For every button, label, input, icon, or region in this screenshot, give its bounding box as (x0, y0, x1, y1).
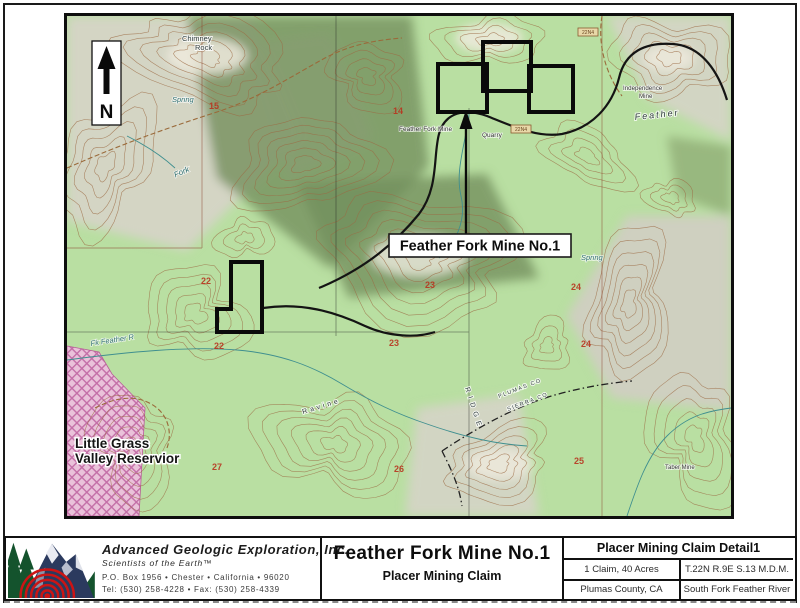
county-cell: Plumas County, CA (564, 581, 681, 600)
company-phone-line: Tel: (530) 258-4228 • Fax: (530) 258-433… (102, 584, 316, 596)
road-badge-label: 22N4 (515, 127, 527, 133)
section-number: 14 (393, 106, 403, 116)
township-cell: T.22N R.9E S.13 M.D.M. (681, 560, 793, 579)
claim-detail-table: Placer Mining Claim Detail1 1 Claim, 40 … (562, 538, 793, 599)
spring-label: Spring (581, 253, 604, 262)
callout-text: Feather Fork Mine No.1 (400, 239, 560, 255)
map-title: Feather Fork Mine No.1 (322, 543, 562, 565)
section-number: 26 (394, 464, 404, 474)
company-section: Advanced Geologic Exploration, Inc. Scie… (6, 538, 320, 599)
company-address-line: P.O. Box 1956 • Chester • California • 9… (102, 572, 316, 584)
taber-mine-label: Taber Mine (665, 465, 695, 471)
map-subtitle: Placer Mining Claim (322, 569, 562, 583)
quarry-label: Quarry (482, 132, 503, 139)
claim-size-cell: 1 Claim, 40 Acres (564, 560, 681, 579)
section-number: 25 (574, 456, 584, 466)
company-name: Advanced Geologic Exploration, Inc. (102, 542, 316, 557)
road-badge-label: 22N4 (582, 30, 594, 36)
section-number: 27 (212, 462, 222, 472)
topo-map: 22N4 22N4 15 14 22 22 23 23 24 24 25 26 … (64, 13, 734, 519)
river-cell: South Fork Feather River (681, 581, 793, 600)
chimney-rock-label: Rock (195, 43, 212, 52)
map-title-section: Feather Fork Mine No.1 Placer Mining Cla… (320, 538, 562, 599)
company-address: P.O. Box 1956 • Chester • California • 9… (102, 572, 316, 595)
page-bottom-dashed-edge (4, 601, 796, 603)
section-number: 15 (209, 101, 219, 111)
claim-map-page: 22N4 22N4 15 14 22 22 23 23 24 24 25 26 … (0, 0, 800, 608)
svg-text:Little Grass: Little Grass (75, 436, 149, 451)
independence-mine-label: Independence (623, 85, 663, 92)
company-tagline: Scientists of the Earth™ (102, 558, 316, 568)
title-block: Advanced Geologic Exploration, Inc. Scie… (4, 536, 797, 601)
north-label: N (100, 102, 114, 123)
section-number: 22 (214, 341, 224, 351)
chimney-rock-label: Chimney (182, 34, 212, 43)
table-row: Plumas County, CA South Fork Feather Riv… (564, 581, 793, 600)
independence-mine-label: Mine (639, 93, 653, 100)
spring-label: Spring (172, 95, 195, 104)
company-logo (8, 539, 96, 598)
section-number: 24 (571, 282, 581, 292)
section-number: 23 (389, 338, 399, 348)
detail-table-header: Placer Mining Claim Detail1 (564, 538, 793, 560)
section-number: 23 (425, 280, 435, 290)
section-number: 22 (201, 276, 211, 286)
north-arrow: N (92, 41, 121, 125)
feather-fork-mine-label: Feather Fork Mine (399, 126, 452, 133)
svg-text:Valley Reservior: Valley Reservior (75, 451, 180, 466)
table-row: 1 Claim, 40 Acres T.22N R.9E S.13 M.D.M. (564, 560, 793, 581)
section-number: 24 (581, 339, 591, 349)
